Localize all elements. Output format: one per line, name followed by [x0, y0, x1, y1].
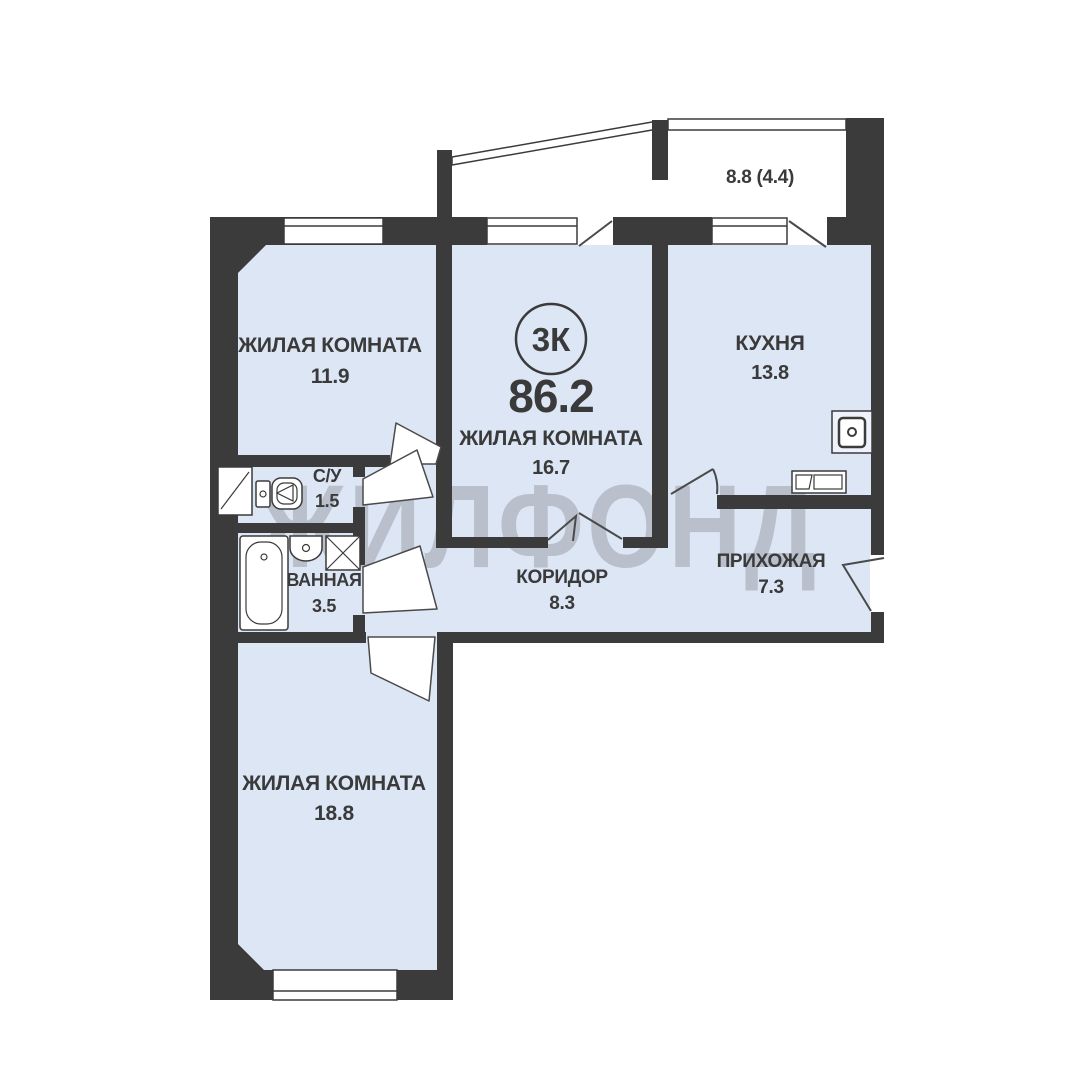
- wall-segment: [717, 495, 884, 509]
- window: [273, 970, 397, 1000]
- total-area: 86.2: [508, 370, 594, 422]
- balcony-post: [652, 120, 668, 180]
- room-label-corridor: КОРИДОР: [516, 567, 608, 588]
- wall-segment: [846, 118, 884, 217]
- wall-segment: [623, 537, 668, 548]
- balcony-edge-line: [452, 130, 652, 165]
- room-label-living1: ЖИЛАЯ КОМНАТА: [237, 334, 422, 357]
- room-label-hall: ПРИХОЖАЯ: [717, 551, 826, 572]
- wall-segment: [652, 245, 668, 548]
- room-label-wc: С/У: [313, 466, 342, 486]
- balcony-outline: [452, 119, 846, 165]
- window: [487, 218, 577, 244]
- window: [712, 218, 787, 244]
- room-label-bath: ВАННАЯ: [286, 570, 361, 590]
- wall-segment: [210, 632, 366, 643]
- room-area-corridor: 8.3: [549, 593, 575, 614]
- washing-machine-icon: [326, 536, 360, 570]
- balcony-door-leaf: [789, 221, 826, 247]
- floorplan-svg: ЖИЛФОНД: [0, 0, 1080, 1080]
- room-area-kitchen: 13.8: [751, 362, 789, 384]
- bathtub-icon: [240, 536, 288, 630]
- entrance-door-gap: [870, 555, 885, 612]
- room-area-bath: 3.5: [312, 596, 336, 616]
- wall-segment: [353, 467, 365, 477]
- type-badge: 3К: [532, 321, 571, 358]
- wall-segment: [613, 217, 712, 245]
- wall-segment: [436, 245, 452, 548]
- balcony-edge-line: [452, 122, 652, 157]
- wall-segment: [210, 455, 390, 467]
- stove-icon: [792, 471, 846, 493]
- balcony-door-leaf: [579, 221, 612, 246]
- wall-segment: [827, 217, 884, 245]
- balcony-area-label: 8.8 (4.4): [726, 167, 794, 188]
- toilet-icon: [256, 478, 302, 509]
- floorplan-canvas: ЖИЛФОНД: [0, 0, 1080, 1080]
- wall-segment: [452, 217, 487, 245]
- room-area-living1: 11.9: [311, 365, 350, 388]
- kitchen-sink-icon: [832, 411, 872, 453]
- room-label-living3: ЖИЛАЯ КОМНАТА: [241, 772, 426, 795]
- room-label-kitchen: КУХНЯ: [735, 332, 804, 355]
- sink-icon: [290, 536, 322, 561]
- cabinet-icon: [218, 467, 252, 515]
- wall-segment: [437, 632, 884, 643]
- room-area-hall: 7.3: [758, 577, 784, 598]
- room-area-living3: 18.8: [314, 802, 354, 825]
- room-area-wc: 1.5: [315, 491, 339, 511]
- wall-segment: [210, 217, 238, 1000]
- balcony-post: [437, 150, 452, 217]
- wall-segment: [437, 643, 453, 1000]
- room-label-living2: ЖИЛАЯ КОМНАТА: [458, 427, 643, 450]
- wall-segment: [210, 523, 365, 533]
- room-area-living2: 16.7: [532, 457, 570, 479]
- balcony-parapet: [668, 119, 846, 130]
- window: [284, 218, 383, 244]
- wall-segment: [452, 537, 548, 548]
